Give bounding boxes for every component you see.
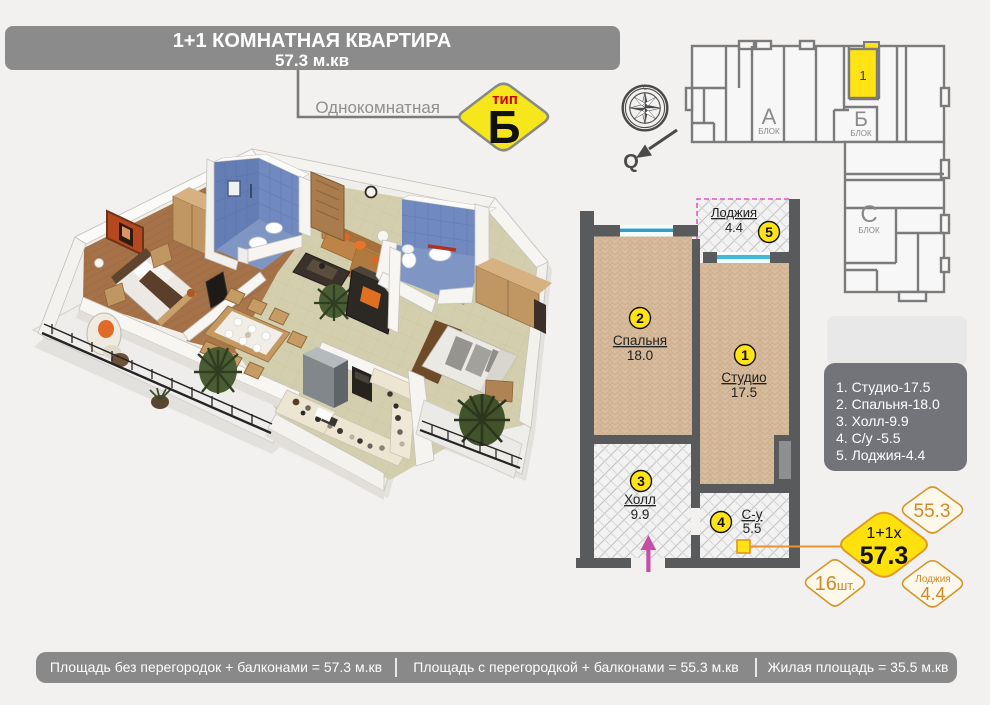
svg-text:9.9: 9.9 xyxy=(631,507,650,522)
svg-text:1: 1 xyxy=(859,68,866,83)
svg-text:4. С/у -5.5: 4. С/у -5.5 xyxy=(836,430,901,446)
svg-text:Студио: Студио xyxy=(721,370,766,385)
svg-text:Жилая площадь = 35.5 м.кв: Жилая площадь = 35.5 м.кв xyxy=(768,659,949,675)
svg-text:5.5: 5.5 xyxy=(743,521,762,536)
svg-text:С: С xyxy=(860,201,877,228)
svg-text:БЛОК: БЛОК xyxy=(758,127,780,136)
svg-text:3: 3 xyxy=(637,473,645,489)
svg-text:Лоджия: Лоджия xyxy=(711,205,757,220)
svg-text:57.3: 57.3 xyxy=(860,542,909,570)
svg-text:5: 5 xyxy=(765,224,773,240)
svg-text:С: С xyxy=(643,86,647,92)
svg-text:Площадь с перегородкой + балко: Площадь с перегородкой + балконами = 55.… xyxy=(413,659,738,675)
svg-text:Холл: Холл xyxy=(624,492,656,507)
svg-text:1+1x: 1+1x xyxy=(866,525,901,542)
svg-text:3. Холл-9.9: 3. Холл-9.9 xyxy=(836,413,909,429)
svg-text:57.3 м.кв: 57.3 м.кв xyxy=(275,51,349,70)
svg-text:1: 1 xyxy=(741,347,749,363)
svg-text:Площадь без перегородок + балк: Площадь без перегородок + балконами = 57… xyxy=(50,659,382,675)
svg-text:1+1 КОМНАТНАЯ КВАРТИРА: 1+1 КОМНАТНАЯ КВАРТИРА xyxy=(173,30,452,52)
svg-text:4: 4 xyxy=(717,514,725,530)
svg-text:4.4: 4.4 xyxy=(725,220,743,235)
svg-text:2: 2 xyxy=(636,310,644,326)
svg-text:55.3: 55.3 xyxy=(914,501,951,522)
svg-text:А: А xyxy=(762,104,777,129)
svg-text:С-у: С-у xyxy=(742,507,763,522)
svg-text:5. Лоджия-4.4: 5. Лоджия-4.4 xyxy=(836,447,926,463)
svg-text:17.5: 17.5 xyxy=(731,385,757,400)
svg-text:Спальня: Спальня xyxy=(613,333,667,348)
svg-text:БЛОК: БЛОК xyxy=(858,226,880,235)
svg-text:Б: Б xyxy=(854,108,868,131)
svg-text:18.0: 18.0 xyxy=(627,348,653,363)
svg-text:Б: Б xyxy=(487,101,520,153)
svg-text:Однокомнатная: Однокомнатная xyxy=(315,98,440,117)
svg-text:2. Спальня-18.0: 2. Спальня-18.0 xyxy=(836,396,940,412)
svg-text:1. Студио-17.5: 1. Студио-17.5 xyxy=(836,379,931,395)
svg-text:БЛОК: БЛОК xyxy=(850,129,872,138)
svg-text:4.4: 4.4 xyxy=(920,584,945,604)
svg-text:Q: Q xyxy=(623,151,639,173)
